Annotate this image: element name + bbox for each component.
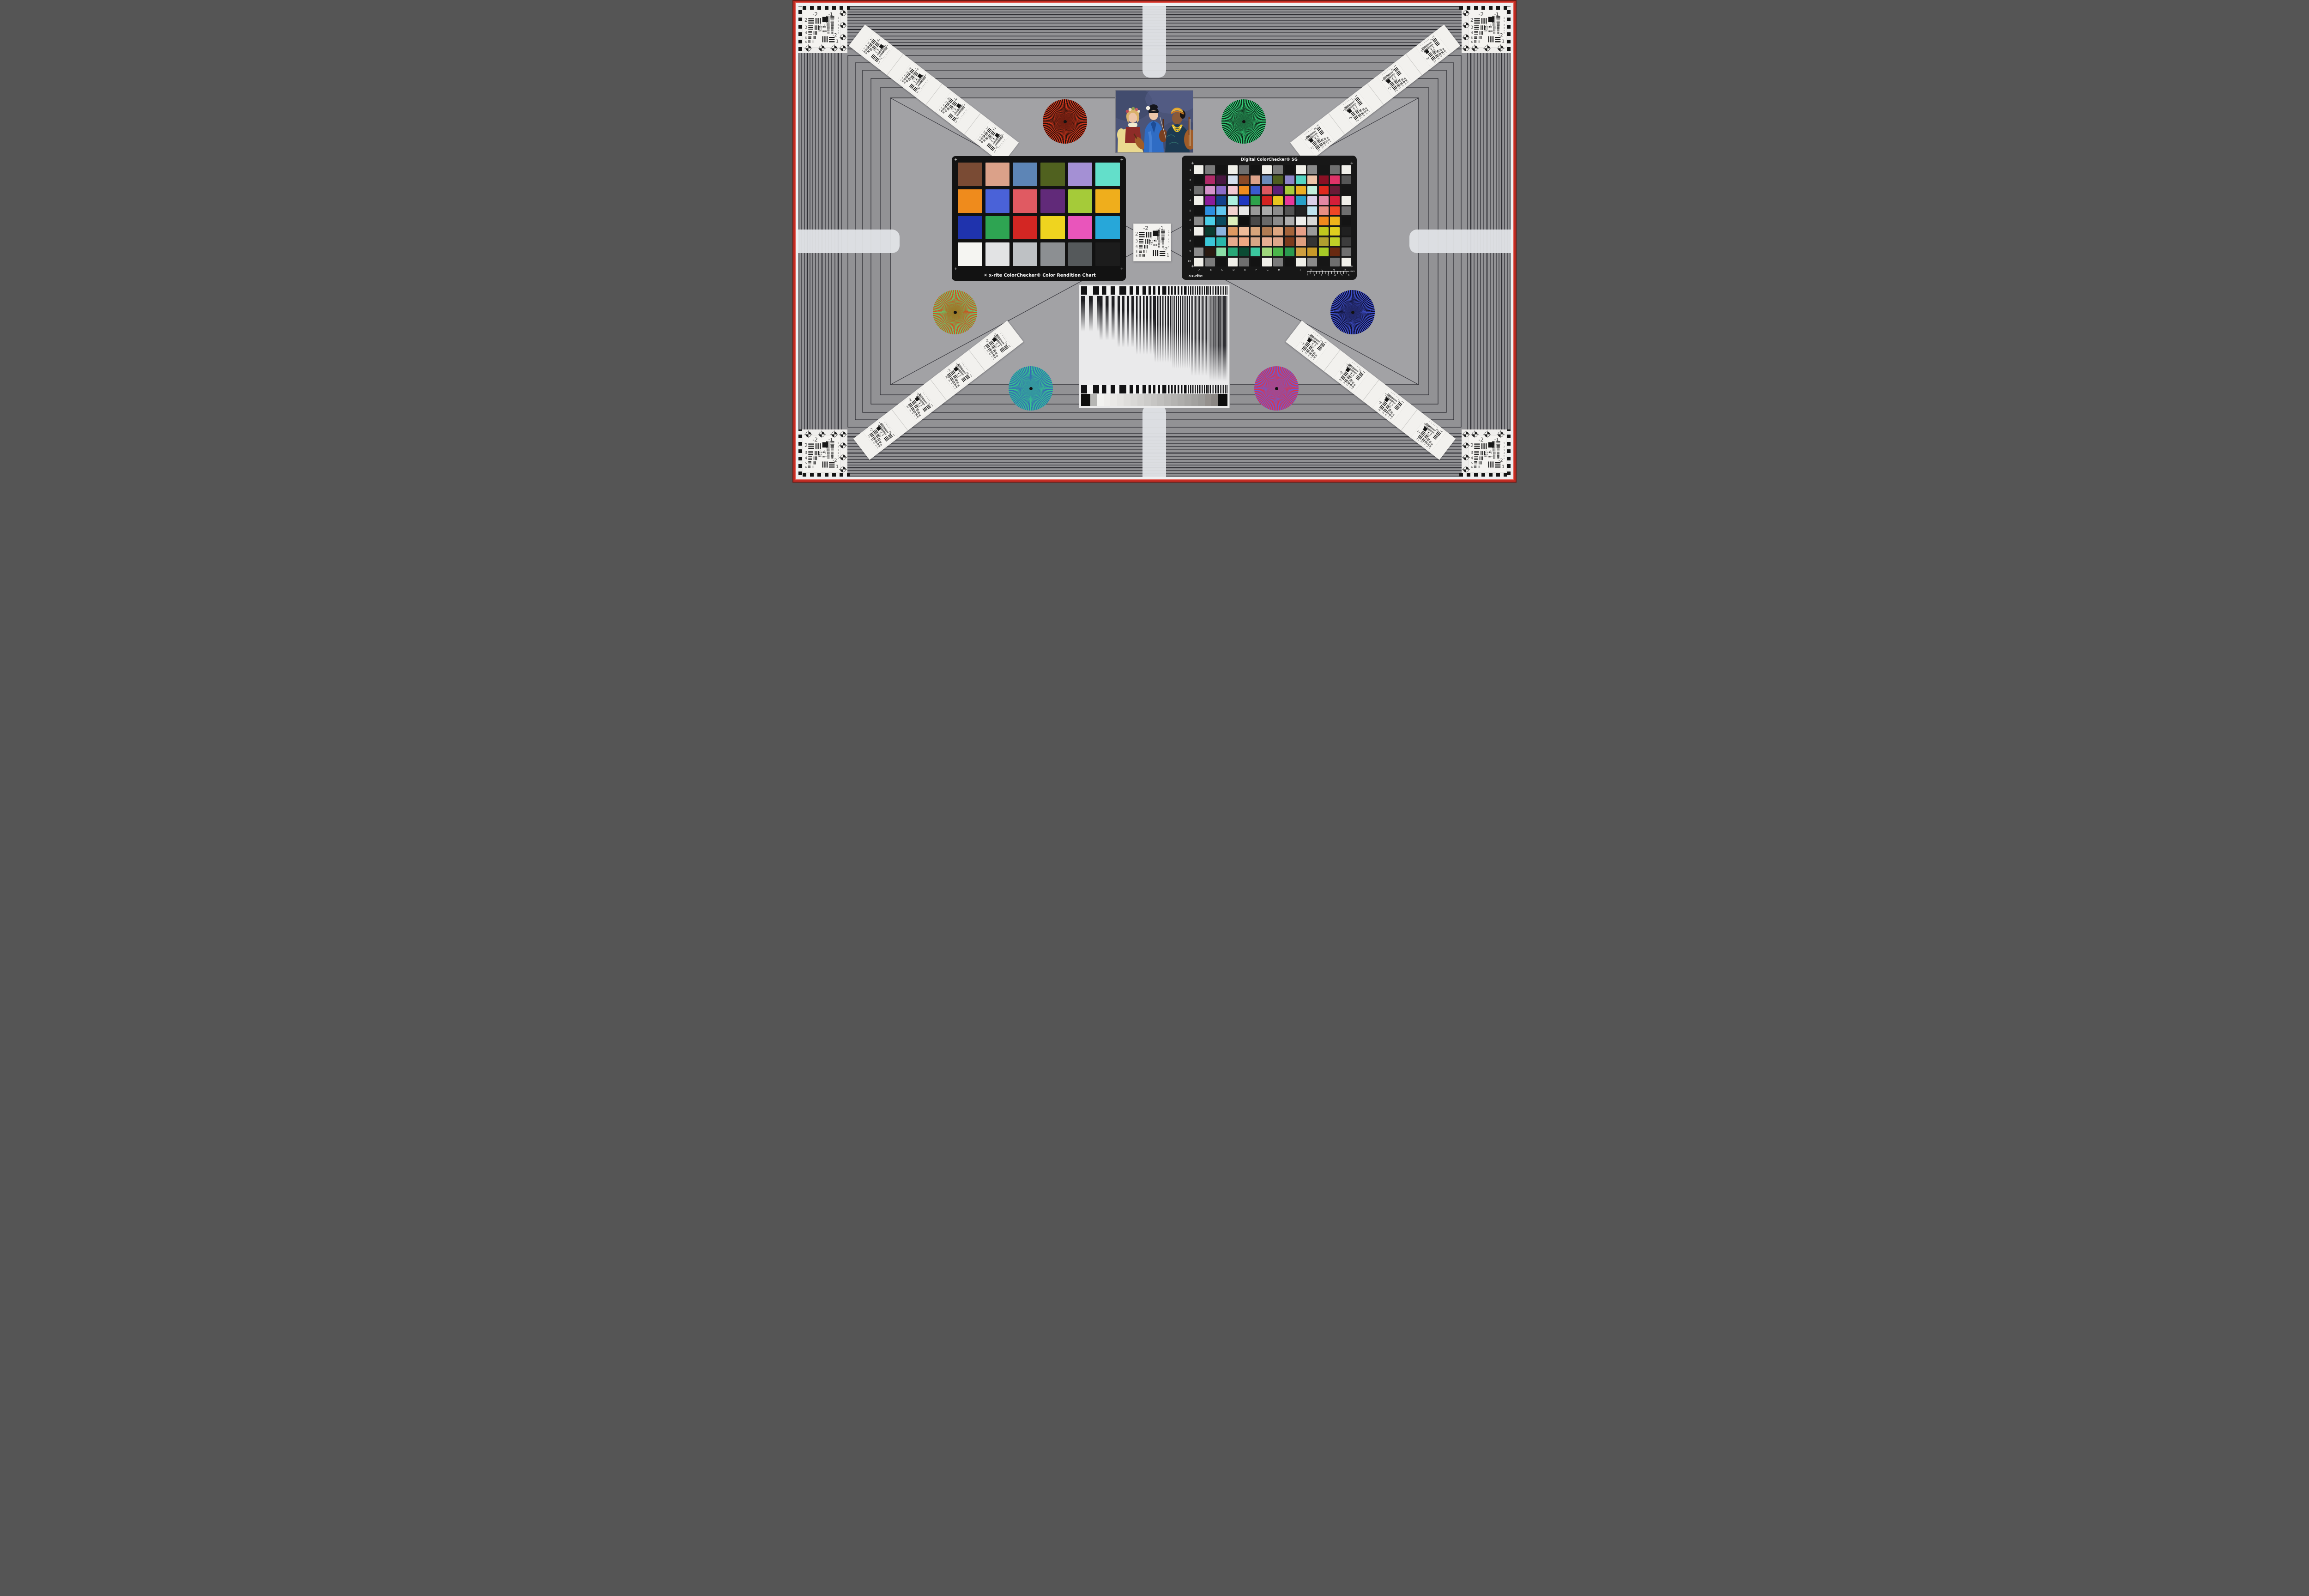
- sg-column-label: G: [1267, 269, 1269, 272]
- color-patch: [1216, 175, 1226, 184]
- registration-bar-bottom: [1142, 405, 1166, 479]
- color-patch: [1296, 237, 1306, 246]
- center-resolution-target: [1133, 224, 1172, 261]
- color-patch: [1330, 206, 1340, 215]
- xrite-logo-icon: ✕: [984, 273, 987, 278]
- ruler-number: 6: [1348, 274, 1349, 277]
- color-patch: [1319, 206, 1329, 215]
- sg-row-label: 4: [1185, 199, 1191, 202]
- color-patch: [1319, 175, 1329, 184]
- color-patch: [1239, 206, 1249, 215]
- ramp-step: [1110, 394, 1117, 406]
- ramp-step: [1157, 394, 1164, 406]
- sg-column-label: F: [1256, 269, 1257, 272]
- color-patch: [1239, 258, 1249, 266]
- color-patch: [1262, 217, 1272, 225]
- color-patch: [1228, 248, 1238, 256]
- xrite-logo-icon: ✕: [1188, 274, 1191, 278]
- color-patch: [1251, 196, 1260, 205]
- color-patch: [1194, 248, 1203, 256]
- color-patch: [1194, 237, 1203, 246]
- color-patch: [1194, 258, 1203, 266]
- color-patch: [1216, 217, 1226, 225]
- sg-column-label: I: [1290, 269, 1291, 272]
- color-patch: [1205, 258, 1215, 266]
- sg-row-labels: 12345678910: [1185, 165, 1191, 266]
- color-patch: [1307, 165, 1317, 174]
- sg-chart-title: Digital ColorChecker® SG: [1182, 157, 1357, 162]
- ruler-number: 1: [1314, 274, 1315, 277]
- color-patch: [1251, 217, 1260, 225]
- ramp-step: [1130, 394, 1137, 406]
- frequency-sweep-chart: [1079, 284, 1230, 408]
- color-patch: [1296, 206, 1306, 215]
- color-patch: [1216, 206, 1226, 215]
- sg-column-label: J: [1300, 269, 1301, 272]
- color-patch: [1285, 227, 1294, 236]
- sg-row-label: 8: [1185, 240, 1191, 242]
- ramp-lead: [1090, 394, 1097, 406]
- color-patch: [1205, 237, 1215, 246]
- color-patch: [1205, 217, 1215, 225]
- ramp-black-end: [1081, 394, 1090, 406]
- colorchecker-classic-patches: [958, 163, 1120, 266]
- color-patch: [1251, 186, 1260, 195]
- color-patch: [1296, 175, 1306, 184]
- color-patch: [1251, 227, 1260, 236]
- color-patch: [1194, 206, 1203, 215]
- ramp-step: [1137, 394, 1144, 406]
- color-patch: [1194, 165, 1203, 174]
- color-patch: [1307, 217, 1317, 225]
- color-patch: [958, 216, 982, 240]
- color-patch: [1285, 248, 1294, 256]
- color-patch: [1307, 175, 1317, 184]
- color-patch: [985, 242, 1010, 266]
- color-patch: [1262, 237, 1272, 246]
- color-patch: [1251, 237, 1260, 246]
- color-patch: [1013, 242, 1037, 266]
- color-patch: [958, 163, 982, 186]
- color-patch: [1262, 248, 1272, 256]
- color-patch: [985, 163, 1010, 186]
- color-patch: [1228, 217, 1238, 225]
- color-patch: [1013, 216, 1037, 240]
- color-patch: [985, 189, 1010, 213]
- color-patch: [1228, 227, 1238, 236]
- color-patch: [1319, 186, 1329, 195]
- color-patch: [1319, 165, 1329, 174]
- color-patch: [1319, 237, 1329, 246]
- color-patch: [1307, 196, 1317, 205]
- sg-column-label: C: [1221, 269, 1223, 272]
- color-patch: [1273, 175, 1283, 184]
- color-patch: [1040, 189, 1065, 213]
- color-patch: [1273, 186, 1283, 195]
- color-patch: [1239, 196, 1249, 205]
- ramp-step: [1151, 394, 1158, 406]
- color-patch: [1239, 237, 1249, 246]
- color-patch: [958, 189, 982, 213]
- color-patch: [1262, 175, 1272, 184]
- color-patch: [1040, 242, 1065, 266]
- color-patch: [1342, 206, 1351, 215]
- camera-test-chart-scene: -2 -1 2 3 4 5 6: [792, 0, 1517, 483]
- color-patch: [1205, 248, 1215, 256]
- color-patch: [1319, 217, 1329, 225]
- color-patch: [1013, 189, 1037, 213]
- color-patch: [1330, 186, 1340, 195]
- color-patch: [1194, 217, 1203, 225]
- color-patch: [1239, 165, 1249, 174]
- color-patch: [1307, 227, 1317, 236]
- color-patch: [1205, 206, 1215, 215]
- siemens-star-red: [1043, 99, 1087, 144]
- color-patch: [1296, 227, 1306, 236]
- sg-mm-ruler: 0123456 mm: [1307, 271, 1349, 277]
- color-patch: [1330, 165, 1340, 174]
- color-patch: [1330, 196, 1340, 205]
- ramp-step: [1144, 394, 1151, 406]
- ruler-number: 3: [1327, 274, 1329, 277]
- color-patch: [1296, 186, 1306, 195]
- color-patch: [1228, 237, 1238, 246]
- color-patch: [1194, 186, 1203, 195]
- ramp-step: [1198, 394, 1205, 406]
- colorchecker-classic-chart: + + + + ✕x-rite ColorChecker® Color Rend…: [952, 156, 1126, 281]
- color-patch: [1342, 186, 1351, 195]
- color-patch: [1205, 165, 1215, 174]
- color-patch: [1262, 206, 1272, 215]
- color-patch: [1013, 163, 1037, 186]
- color-patch: [1273, 217, 1283, 225]
- color-patch: [1285, 206, 1294, 215]
- sg-row-label: 7: [1185, 230, 1191, 232]
- color-patch: [1330, 248, 1340, 256]
- color-patch: [1216, 237, 1226, 246]
- siemens-star-green: [1221, 99, 1266, 144]
- color-patch: [1285, 258, 1294, 266]
- color-patch: [1296, 248, 1306, 256]
- color-patch: [1330, 217, 1340, 225]
- sg-row-label: 1: [1185, 169, 1191, 172]
- color-patch: [1319, 227, 1329, 236]
- color-patch: [1273, 196, 1283, 205]
- color-patch: [1273, 206, 1283, 215]
- color-patch: [1205, 227, 1215, 236]
- color-patch: [1068, 189, 1093, 213]
- color-patch: [1040, 163, 1065, 186]
- color-patch: [958, 242, 982, 266]
- color-patch: [1194, 196, 1203, 205]
- color-patch: [1068, 163, 1093, 186]
- color-patch: [1307, 248, 1317, 256]
- ramp-step: [1164, 394, 1171, 406]
- color-patch: [1262, 186, 1272, 195]
- sg-row-label: 3: [1185, 189, 1191, 192]
- color-patch: [1095, 216, 1120, 240]
- color-patch: [1068, 216, 1093, 240]
- color-patch: [1228, 196, 1238, 205]
- corner-target-top-right: [1459, 3, 1514, 55]
- sg-row-label: 5: [1185, 210, 1191, 212]
- color-patch: [1342, 175, 1351, 184]
- ramp-step: [1178, 394, 1185, 406]
- siemens-star-green-blue: [1009, 366, 1053, 411]
- color-patch: [1342, 217, 1351, 225]
- sg-column-label: B: [1210, 269, 1212, 272]
- color-patch: [1216, 165, 1226, 174]
- color-patch: [1273, 227, 1283, 236]
- ramp-step: [1117, 394, 1124, 406]
- registration-bar-top: [1142, 3, 1166, 78]
- color-patch: [1251, 175, 1260, 184]
- color-patch: [1319, 258, 1329, 266]
- colorchecker-classic-label: ✕x-rite ColorChecker® Color Rendition Ch…: [952, 273, 1126, 278]
- color-patch: [1216, 227, 1226, 236]
- sg-patches: [1194, 165, 1351, 266]
- corner-target-top-left: [795, 3, 850, 55]
- frequency-bar-top: [1081, 286, 1227, 295]
- brand-text: x-rite: [989, 273, 1002, 278]
- ramp-step: [1124, 394, 1130, 406]
- registration-bar-right: [1409, 230, 1513, 253]
- color-patch: [1330, 227, 1340, 236]
- ruler-number: 5: [1341, 274, 1342, 277]
- color-patch: [1216, 248, 1226, 256]
- color-patch: [1342, 165, 1351, 174]
- color-patch: [1285, 196, 1294, 205]
- siemens-star-blue: [1330, 290, 1375, 334]
- color-patch: [1239, 227, 1249, 236]
- color-patch: [1216, 186, 1226, 195]
- color-patch: [1342, 196, 1351, 205]
- color-patch: [1285, 217, 1294, 225]
- sg-row-label: 9: [1185, 250, 1191, 253]
- color-patch: [1095, 189, 1120, 213]
- brand-text: x-rite: [1191, 274, 1203, 278]
- digital-colorchecker-sg-chart: Digital ColorChecker® SG + + + + 1234567…: [1182, 156, 1357, 280]
- color-patch: [1319, 248, 1329, 256]
- color-patch: [1205, 196, 1215, 205]
- color-patch: [1273, 248, 1283, 256]
- color-patch: [1251, 165, 1260, 174]
- color-patch: [1228, 206, 1238, 215]
- grayscale-ramp: [1081, 394, 1227, 406]
- color-patch: [1330, 258, 1340, 266]
- color-patch: [1228, 165, 1238, 174]
- color-patch: [1251, 248, 1260, 256]
- color-patch: [1095, 242, 1120, 266]
- color-patch: [1342, 248, 1351, 256]
- color-patch: [1285, 165, 1294, 174]
- color-patch: [1228, 175, 1238, 184]
- color-patch: [985, 216, 1010, 240]
- color-patch: [1330, 237, 1340, 246]
- color-patch: [1068, 242, 1093, 266]
- siemens-star-red-blue: [1254, 366, 1299, 411]
- color-patch: [1228, 258, 1238, 266]
- ruler-unit: mm: [1350, 270, 1355, 273]
- sg-row-label: 2: [1185, 179, 1191, 182]
- sg-column-label: D: [1233, 269, 1234, 272]
- ramp-steps: [1097, 394, 1218, 406]
- ramp-step: [1171, 394, 1178, 406]
- color-patch: [1216, 196, 1226, 205]
- ruler-ticks: [1307, 271, 1349, 274]
- color-patch: [1205, 186, 1215, 195]
- color-patch: [1262, 227, 1272, 236]
- color-patch: [1239, 186, 1249, 195]
- color-patch: [1216, 258, 1226, 266]
- color-patch: [1342, 237, 1351, 246]
- color-patch: [1307, 258, 1317, 266]
- color-patch: [1296, 196, 1306, 205]
- ramp-step: [1211, 394, 1218, 406]
- ramp-black-end: [1218, 394, 1227, 406]
- ruler-numbers: 0123456: [1307, 274, 1349, 277]
- ramp-step: [1191, 394, 1198, 406]
- ramp-step: [1104, 394, 1111, 406]
- color-patch: [1330, 175, 1340, 184]
- color-patch: [1251, 258, 1260, 266]
- color-patch: [1194, 227, 1203, 236]
- color-patch: [1205, 175, 1215, 184]
- ramp-step: [1185, 394, 1191, 406]
- portrait-photo-three-musicians: [1116, 91, 1193, 152]
- color-patch: [1095, 163, 1120, 186]
- sg-column-label: E: [1244, 269, 1245, 272]
- color-patch: [1262, 196, 1272, 205]
- sg-row-label: 10: [1185, 260, 1191, 263]
- ruler-number: 0: [1307, 274, 1308, 277]
- color-patch: [1296, 165, 1306, 174]
- color-patch: [1307, 237, 1317, 246]
- color-patch: [1239, 217, 1249, 225]
- color-patch: [1296, 258, 1306, 266]
- color-patch: [1228, 186, 1238, 195]
- color-patch: [1273, 258, 1283, 266]
- frequency-bar-bottom: [1081, 385, 1227, 393]
- color-patch: [1285, 175, 1294, 184]
- color-patch: [1040, 216, 1065, 240]
- corner-target-bottom-left: [795, 427, 850, 480]
- color-patch: [1285, 237, 1294, 246]
- color-patch: [1307, 186, 1317, 195]
- color-patch: [1285, 186, 1294, 195]
- color-patch: [1262, 165, 1272, 174]
- sg-row-label: 6: [1185, 219, 1191, 222]
- ramp-step: [1205, 394, 1212, 406]
- color-patch: [1296, 217, 1306, 225]
- color-patch: [1239, 175, 1249, 184]
- color-patch: [1194, 175, 1203, 184]
- color-patch: [1251, 206, 1260, 215]
- sg-brand: ✕x-rite: [1188, 274, 1203, 278]
- color-patch: [1319, 196, 1329, 205]
- color-patch: [1273, 165, 1283, 174]
- color-patch: [1239, 248, 1249, 256]
- ruler-number: 4: [1334, 274, 1336, 277]
- corner-target-bottom-right: [1459, 427, 1514, 480]
- chart-title: ColorChecker® Color Rendition Chart: [1003, 273, 1095, 278]
- color-patch: [1262, 258, 1272, 266]
- ruler-number: 2: [1321, 274, 1322, 277]
- ramp-step: [1097, 394, 1104, 406]
- sg-column-label: A: [1198, 269, 1200, 272]
- color-patch: [1273, 237, 1283, 246]
- sg-column-label: H: [1278, 269, 1280, 272]
- sweep-area: [1081, 296, 1227, 385]
- registration-bar-left: [796, 230, 900, 253]
- color-patch: [1307, 206, 1317, 215]
- color-patch: [1342, 227, 1351, 236]
- siemens-star-red-green: [933, 290, 977, 334]
